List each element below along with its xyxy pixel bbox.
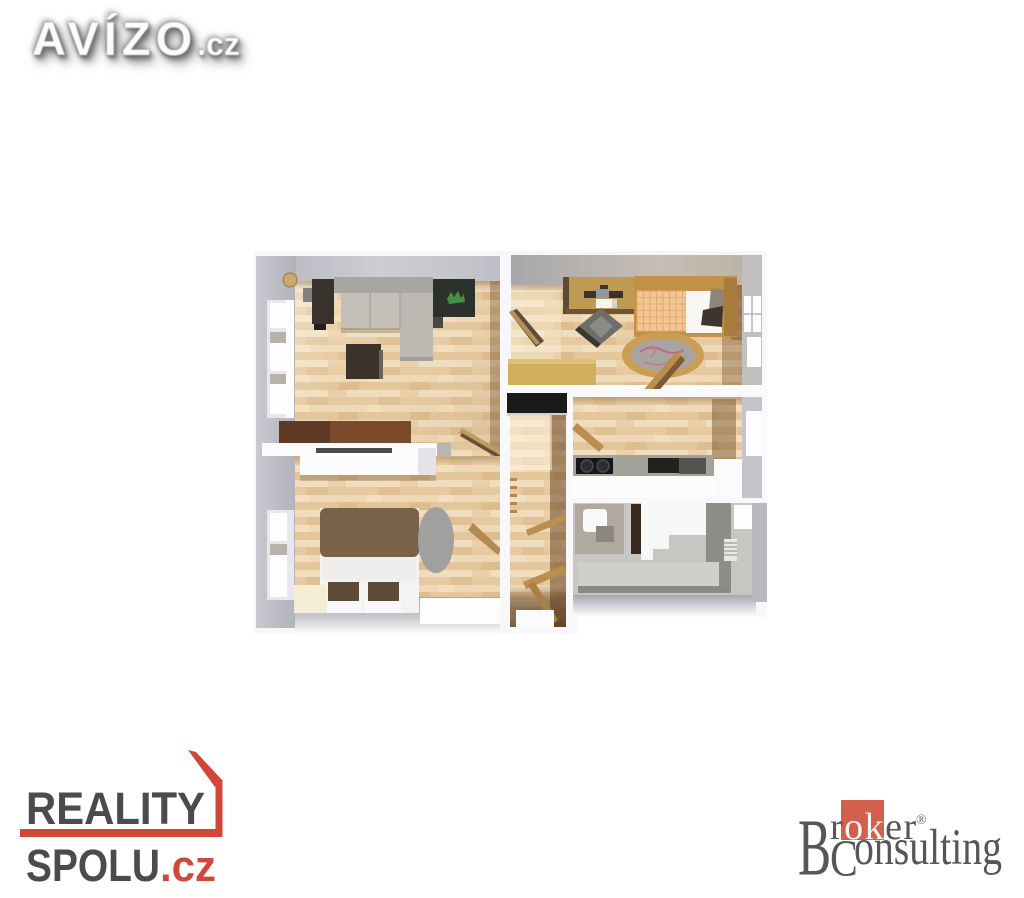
- svg-text:onsulting: onsulting: [854, 818, 1002, 875]
- svg-text:SPOLU: SPOLU: [26, 840, 160, 890]
- svg-text:REALITY: REALITY: [26, 783, 205, 834]
- svg-text:B: B: [798, 805, 831, 893]
- svg-text:.cz: .cz: [160, 842, 216, 890]
